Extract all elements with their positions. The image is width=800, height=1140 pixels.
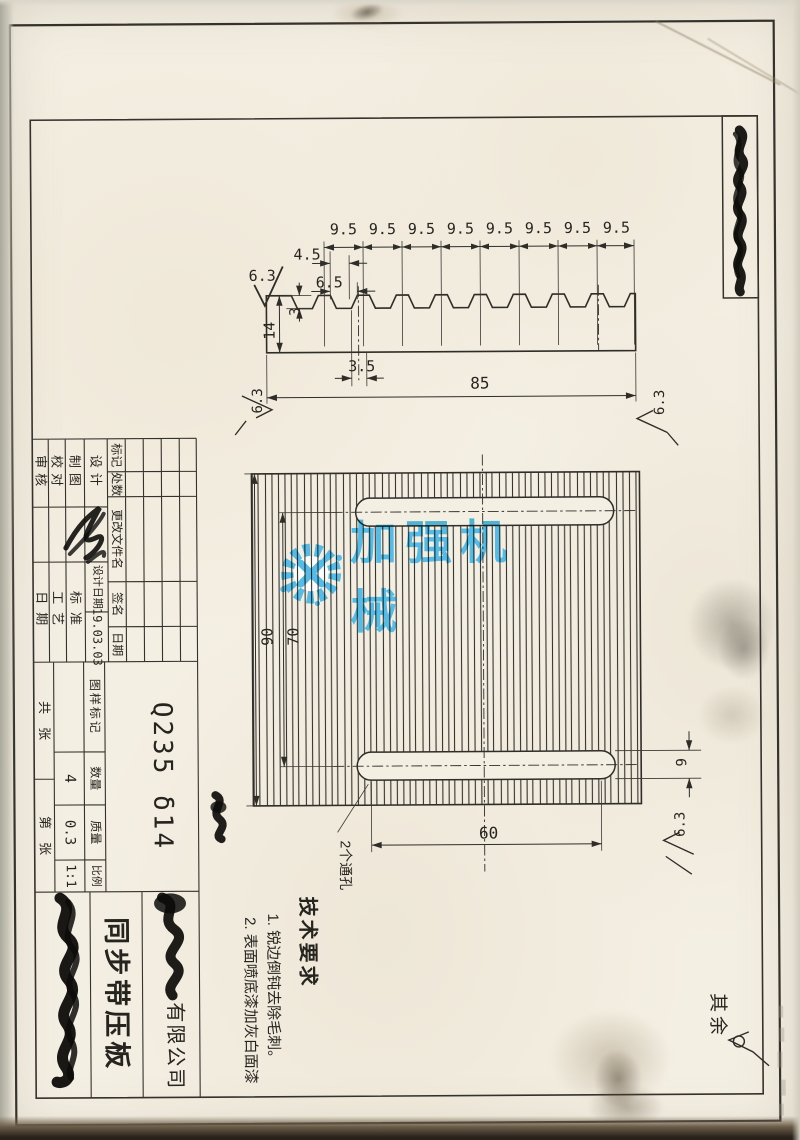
tb-stamp-qty: 数量 [84,752,105,805]
dim-14: 14 [262,316,277,346]
dim-3-5: 3.5 [343,358,381,375]
tb-role-design: 设计 [84,439,107,507]
watermark-text: 加强机械 [350,503,559,642]
dim-pitch-8: 9.5 [597,220,636,238]
dim-6-5: 6.5 [310,274,348,291]
tb-qty-value: 4 [54,752,84,805]
tb-rev-sign: 签名 [108,582,126,627]
dim-70: 70 [286,621,302,653]
profile-view [266,240,636,404]
tb-rev-mark: 标记 [107,439,125,472]
dim-pitch-7: 9.5 [558,220,597,238]
tb-aux-standard: 标准 [66,562,86,662]
dim-90: 90 [260,621,276,653]
dim-9: 9 [675,750,689,774]
tb-mass-value: 0.3 [54,805,84,860]
scanned-drawing-sheet: 9.5 9.5 9.5 9.5 9.5 9.5 9.5 9.5 4.5 6.5 … [0,0,800,1140]
tb-design-date-label: 设计日期 [85,562,108,612]
tb-role-check: 校对 [48,439,65,507]
tb-sheet-no: 第 张 [34,779,55,892]
tb-rev-count: 处数 [107,472,125,497]
dim-4-5: 4.5 [288,246,326,263]
dim-pitch-5: 9.5 [480,220,519,238]
tech-req-item-2: 2. 表面喷底漆加灰白面漆 [239,898,260,1103]
tb-rev-file: 更改文件名 [108,497,127,582]
tb-stamp-scale: 比例 [85,860,106,892]
scan-edge-right [792,0,800,1140]
dim-3: 3 [288,303,302,321]
tb-design-date: 19.03.03 [85,612,108,662]
scan-edge-top [0,0,800,6]
roughness-value-left: 6.3 [251,385,266,417]
dim-60: 60 [468,824,510,842]
dim-pitch-1: 9.5 [324,221,363,239]
tb-role-draft: 制图 [65,439,84,507]
tech-req-item-1: 1. 锐边倒钝去除毛刺。 [262,887,283,1092]
holes-label: 2个通孔 [337,836,354,894]
tb-material: Q235 δ14 [131,673,192,879]
dim-pitch-2: 9.5 [363,221,402,239]
roughness-value-top: 6.3 [244,269,280,285]
rest-surfaces-label: 其余 [705,986,729,1046]
tb-part-name: 同步带压板 [94,895,139,1095]
tech-req-title: 技术要求 [294,892,321,992]
tb-aux-process: 工艺 [49,562,67,662]
dim-pitch-4: 9.5 [441,221,480,239]
watermark: 加强机械 [278,529,559,617]
scan-edge-bottom [0,1116,800,1140]
dim-pitch-3: 9.5 [402,221,441,239]
tb-role-audit: 审核 [32,439,48,507]
gear-logo-icon [278,538,345,608]
tb-rev-date: 日期 [108,627,126,662]
tb-scale-value: 1:1 [55,860,85,892]
scan-edge-left [0,0,14,1140]
roughness-value-right: 6.3 [653,386,668,418]
dim-pitch-6: 9.5 [519,220,558,238]
dim-85: 85 [459,374,501,392]
tb-stamp-mark: 图样标记 [84,662,106,752]
drawing-content: 9.5 9.5 9.5 9.5 9.5 9.5 9.5 9.5 4.5 6.5 … [0,0,800,1140]
tb-aux-date: 日期 [33,562,50,662]
roughness-value-plan: 6.3 [673,808,687,840]
tb-stamp-mass: 质量 [84,805,105,860]
tb-company-name: 有限公司 [155,999,196,1093]
tb-sheets-total: 共 张 [34,662,55,779]
